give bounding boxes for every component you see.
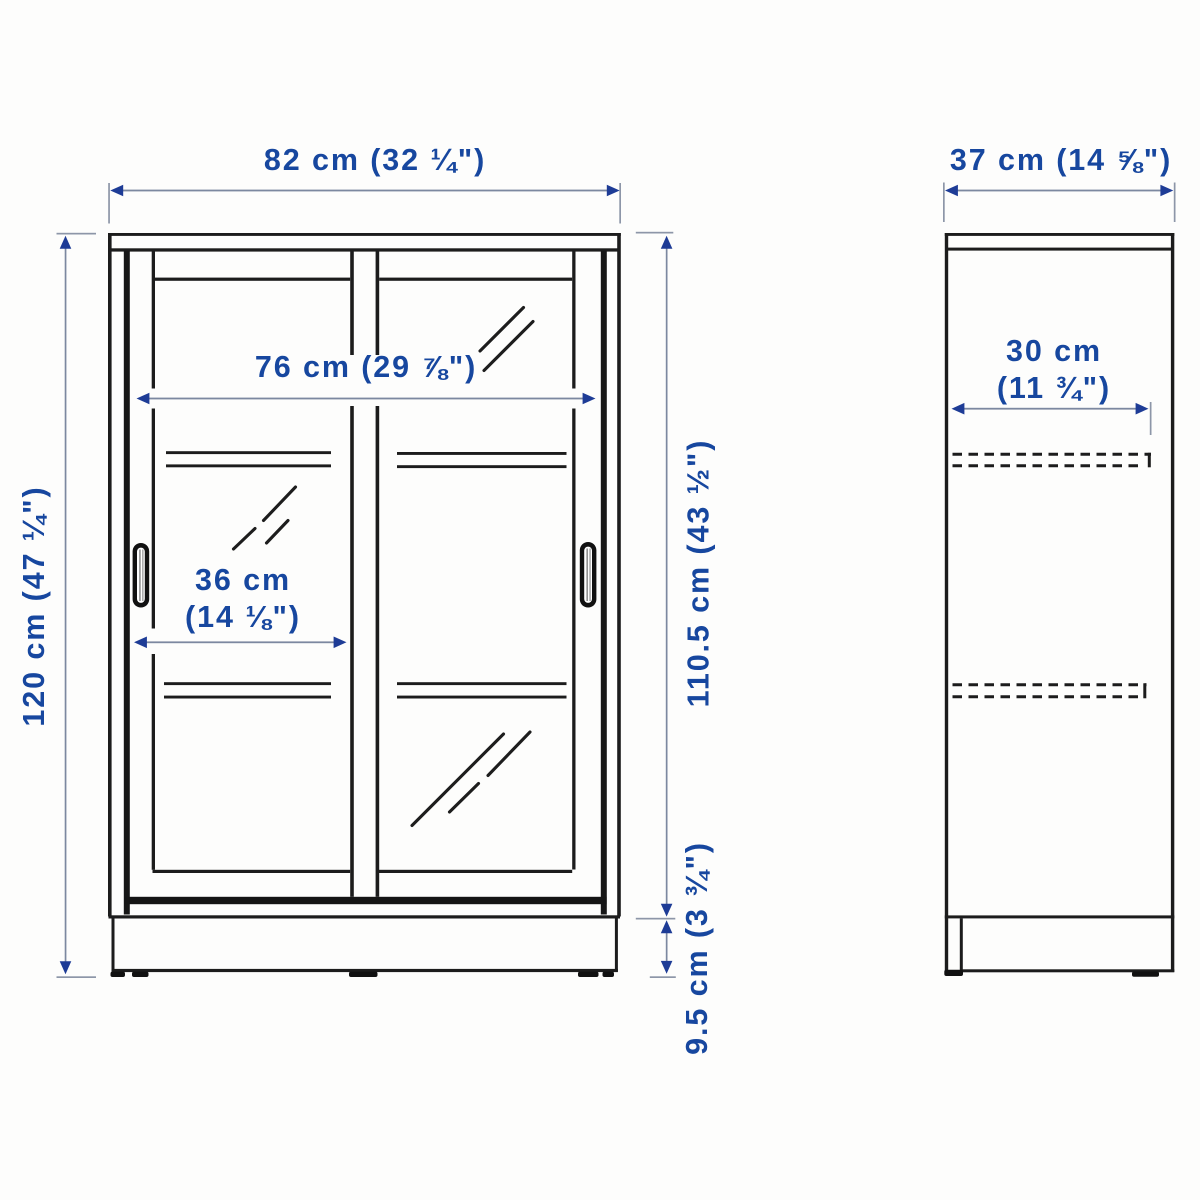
svg-text:82 cm (32 ¼"): 82 cm (32 ¼") bbox=[264, 143, 486, 177]
svg-text:110.5 cm (43 ½"): 110.5 cm (43 ½") bbox=[682, 439, 716, 708]
svg-text:9.5 cm (3 ¾"): 9.5 cm (3 ¾") bbox=[680, 841, 714, 1055]
svg-text:36 cm: 36 cm bbox=[195, 563, 291, 597]
svg-text:37 cm (14 ⅝"): 37 cm (14 ⅝") bbox=[950, 143, 1172, 177]
svg-text:30 cm: 30 cm bbox=[1006, 334, 1102, 368]
svg-text:76 cm (29 ⅞"): 76 cm (29 ⅞") bbox=[255, 350, 477, 384]
svg-text:(14 ⅛"): (14 ⅛") bbox=[185, 600, 301, 634]
svg-text:(11 ¾"): (11 ¾") bbox=[997, 371, 1111, 405]
svg-text:120 cm (47 ¼"): 120 cm (47 ¼") bbox=[17, 485, 51, 726]
